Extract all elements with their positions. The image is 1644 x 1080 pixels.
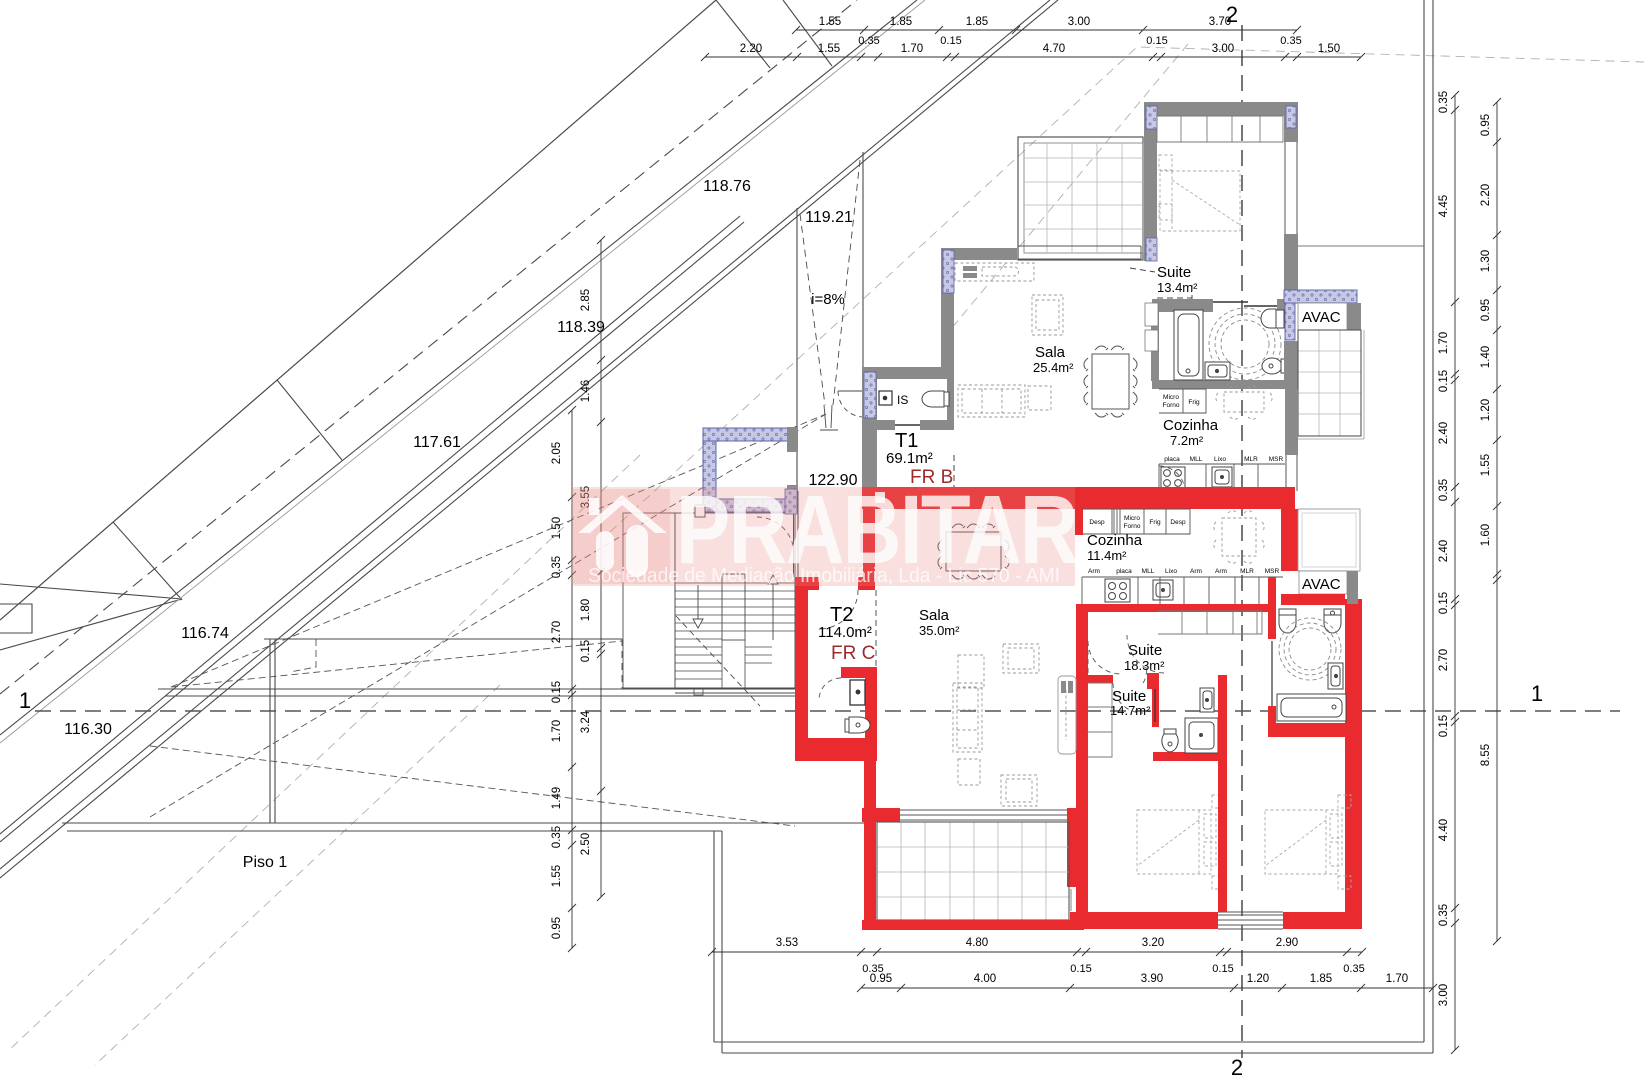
svg-text:Forno: Forno — [1124, 523, 1141, 530]
svg-text:MSR: MSR — [1265, 568, 1280, 575]
svg-text:Frig: Frig — [1149, 519, 1161, 526]
svg-text:114.0m²: 114.0m² — [818, 624, 872, 641]
svg-text:0.15: 0.15 — [580, 640, 592, 662]
svg-text:3.90: 3.90 — [1141, 973, 1163, 985]
svg-text:2.50: 2.50 — [580, 833, 592, 855]
svg-text:MLR: MLR — [1244, 456, 1258, 463]
svg-text:11.4m²: 11.4m² — [1087, 548, 1127, 563]
svg-text:1.40: 1.40 — [1480, 346, 1492, 368]
svg-text:117.61: 117.61 — [413, 434, 461, 451]
svg-text:Frig: Frig — [1188, 399, 1200, 406]
svg-text:0.95: 0.95 — [551, 917, 563, 939]
svg-text:1.70: 1.70 — [901, 43, 923, 55]
svg-text:Lixo: Lixo — [1165, 568, 1177, 575]
svg-text:119.21: 119.21 — [805, 209, 853, 226]
svg-text:3.00: 3.00 — [1438, 984, 1450, 1006]
svg-text:2.90: 2.90 — [1276, 937, 1298, 949]
svg-text:1: 1 — [19, 688, 31, 713]
svg-text:placa: placa — [1164, 456, 1180, 463]
svg-text:4.00: 4.00 — [974, 973, 996, 985]
svg-text:0.35: 0.35 — [1438, 91, 1450, 113]
svg-text:1.55: 1.55 — [551, 865, 563, 887]
svg-text:i=8%: i=8% — [811, 291, 845, 308]
svg-text:116.30: 116.30 — [64, 721, 112, 738]
svg-text:1.80: 1.80 — [580, 599, 592, 621]
svg-text:116.74: 116.74 — [181, 625, 229, 642]
svg-text:3.24: 3.24 — [580, 710, 592, 733]
svg-text:4.70: 4.70 — [1043, 43, 1065, 55]
svg-text:Forno: Forno — [1163, 402, 1180, 409]
svg-text:1.55: 1.55 — [819, 16, 841, 28]
svg-text:MLL: MLL — [1190, 456, 1203, 463]
svg-text:4.45: 4.45 — [1438, 195, 1450, 217]
svg-text:Piso 1: Piso 1 — [243, 854, 288, 871]
svg-text:T1: T1 — [895, 430, 918, 452]
svg-text:AVAC: AVAC — [1302, 309, 1341, 326]
svg-text:2.05: 2.05 — [551, 442, 563, 464]
svg-text:placa: placa — [1116, 568, 1132, 575]
svg-text:Arm: Arm — [1190, 568, 1202, 575]
svg-text:Arm: Arm — [1088, 568, 1100, 575]
svg-text:1.60: 1.60 — [1480, 524, 1492, 546]
svg-text:2: 2 — [1231, 1055, 1243, 1080]
svg-text:0.15: 0.15 — [1438, 592, 1450, 614]
svg-text:Suite: Suite — [1157, 264, 1191, 281]
svg-text:1.50: 1.50 — [551, 517, 563, 539]
svg-text:MSR: MSR — [1269, 456, 1284, 463]
svg-text:3.20: 3.20 — [1142, 937, 1164, 949]
svg-text:18.3m²: 18.3m² — [1124, 658, 1165, 673]
svg-text:0.35: 0.35 — [858, 35, 879, 47]
svg-text:8.55: 8.55 — [1480, 744, 1492, 766]
svg-text:1: 1 — [1531, 681, 1543, 706]
svg-text:25.4m²: 25.4m² — [1033, 360, 1074, 375]
svg-text:Sala: Sala — [919, 607, 950, 624]
svg-text:Sala: Sala — [1035, 344, 1066, 361]
svg-text:1.85: 1.85 — [890, 16, 912, 28]
svg-text:1.30: 1.30 — [1480, 250, 1492, 272]
svg-text:MLL: MLL — [1142, 568, 1155, 575]
svg-text:0.35: 0.35 — [1438, 904, 1450, 926]
svg-text:35.0m²: 35.0m² — [919, 623, 960, 638]
svg-text:1.50: 1.50 — [1318, 43, 1340, 55]
svg-text:1.20: 1.20 — [1480, 399, 1492, 421]
svg-text:0.15: 0.15 — [1070, 963, 1091, 975]
svg-text:1.70: 1.70 — [551, 720, 563, 742]
svg-text:0.15: 0.15 — [940, 35, 961, 47]
svg-text:4.40: 4.40 — [1438, 819, 1450, 841]
svg-text:1.70: 1.70 — [1386, 973, 1408, 985]
svg-text:14.7m²: 14.7m² — [1110, 703, 1151, 718]
svg-text:1.49: 1.49 — [551, 787, 563, 809]
svg-text:Lixo: Lixo — [1214, 456, 1226, 463]
svg-text:0.35: 0.35 — [551, 826, 563, 848]
svg-text:0.15: 0.15 — [551, 681, 563, 703]
svg-text:2.20: 2.20 — [740, 43, 762, 55]
svg-text:2.70: 2.70 — [1438, 649, 1450, 671]
svg-text:Cozinha: Cozinha — [1087, 532, 1143, 549]
svg-text:1.85: 1.85 — [966, 16, 988, 28]
svg-text:0.95: 0.95 — [870, 973, 892, 985]
svg-text:1.46: 1.46 — [580, 380, 592, 402]
svg-text:Arm: Arm — [1215, 568, 1227, 575]
svg-text:Micro: Micro — [1163, 394, 1179, 401]
svg-text:1.85: 1.85 — [1310, 973, 1332, 985]
svg-text:T2: T2 — [830, 604, 853, 626]
svg-text:2.40: 2.40 — [1438, 422, 1450, 444]
svg-text:118.39: 118.39 — [557, 319, 605, 336]
svg-text:4.80: 4.80 — [966, 937, 988, 949]
svg-text:0.35: 0.35 — [551, 556, 563, 578]
svg-text:0.95: 0.95 — [1480, 299, 1492, 321]
svg-text:0.35: 0.35 — [1438, 479, 1450, 501]
svg-text:2.70: 2.70 — [551, 621, 563, 643]
svg-text:FR C: FR C — [831, 643, 875, 664]
svg-text:2: 2 — [1226, 2, 1238, 27]
svg-text:Micro: Micro — [1124, 515, 1140, 522]
svg-text:2.85: 2.85 — [580, 289, 592, 311]
svg-text:0.35: 0.35 — [1280, 35, 1301, 47]
svg-text:7.2m²: 7.2m² — [1170, 433, 1204, 448]
svg-text:Sociedade de Mediação Imobiliá: Sociedade de Mediação Imobiliária, Lda -… — [588, 565, 1060, 587]
svg-text:1.55: 1.55 — [1480, 454, 1492, 476]
svg-text:3.53: 3.53 — [776, 937, 798, 949]
svg-text:118.76: 118.76 — [703, 178, 751, 195]
svg-text:MLR: MLR — [1240, 568, 1254, 575]
svg-text:1.70: 1.70 — [1438, 332, 1450, 354]
svg-text:Cozinha: Cozinha — [1163, 417, 1219, 434]
svg-text:0.15: 0.15 — [1438, 715, 1450, 737]
svg-text:69.1m²: 69.1m² — [886, 450, 933, 467]
svg-text:0.95: 0.95 — [1480, 114, 1492, 136]
svg-text:Desp: Desp — [1170, 519, 1186, 526]
svg-text:1.20: 1.20 — [1247, 973, 1269, 985]
svg-text:0.35: 0.35 — [1343, 963, 1364, 975]
svg-text:2.20: 2.20 — [1480, 184, 1492, 206]
svg-text:1.55: 1.55 — [818, 43, 840, 55]
svg-text:IS: IS — [897, 393, 908, 407]
svg-text:2.40: 2.40 — [1438, 540, 1450, 562]
svg-text:AVAC: AVAC — [1302, 576, 1341, 593]
svg-text:Desp: Desp — [1089, 519, 1105, 526]
svg-text:0.15: 0.15 — [1438, 370, 1450, 392]
svg-text:3.00: 3.00 — [1212, 43, 1234, 55]
svg-text:0.15: 0.15 — [1212, 963, 1233, 975]
svg-text:0.15: 0.15 — [1146, 35, 1167, 47]
svg-text:3.00: 3.00 — [1068, 16, 1090, 28]
